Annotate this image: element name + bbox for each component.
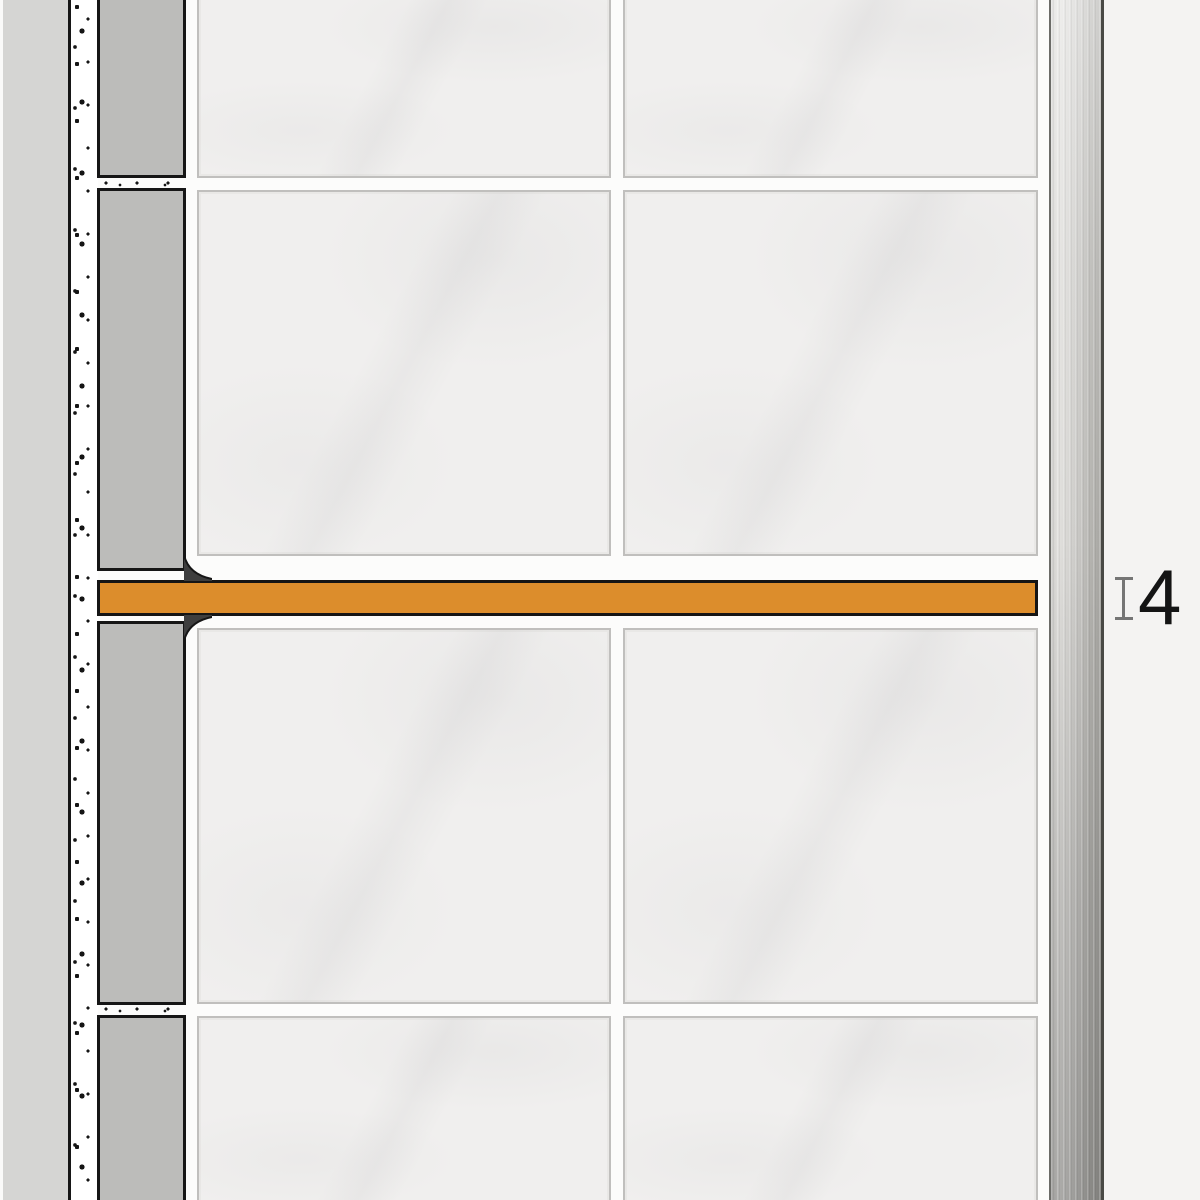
thickness-extent-icon bbox=[1122, 579, 1125, 618]
shelf-fillet-bottom bbox=[184, 615, 212, 641]
wall-tile bbox=[623, 0, 1038, 178]
wall-tile bbox=[197, 0, 611, 178]
tile-section-segment bbox=[97, 1015, 186, 1200]
wall-tile bbox=[197, 628, 611, 1004]
wall-tile bbox=[197, 1016, 611, 1200]
installation-diagram: 4 bbox=[0, 0, 1200, 1200]
thickness-extent-icon bbox=[1115, 617, 1133, 620]
dimension-value: 4 bbox=[1138, 558, 1181, 636]
joint-mortar-dots bbox=[99, 1004, 183, 1015]
shelf-fillet-top bbox=[184, 555, 212, 581]
tile-section-segment bbox=[97, 188, 186, 571]
tile-section-segment bbox=[97, 621, 186, 1005]
wall-tile bbox=[623, 190, 1038, 556]
wall-tile bbox=[623, 1016, 1038, 1200]
edge-trim-profile bbox=[1049, 0, 1104, 1200]
wall-tile bbox=[623, 628, 1038, 1004]
wall-tile bbox=[197, 190, 611, 556]
shelf-profile-bar bbox=[97, 580, 1038, 616]
wall-substrate bbox=[3, 0, 68, 1200]
mortar-speckle-band bbox=[71, 0, 98, 1200]
tile-section-segment bbox=[97, 0, 186, 178]
